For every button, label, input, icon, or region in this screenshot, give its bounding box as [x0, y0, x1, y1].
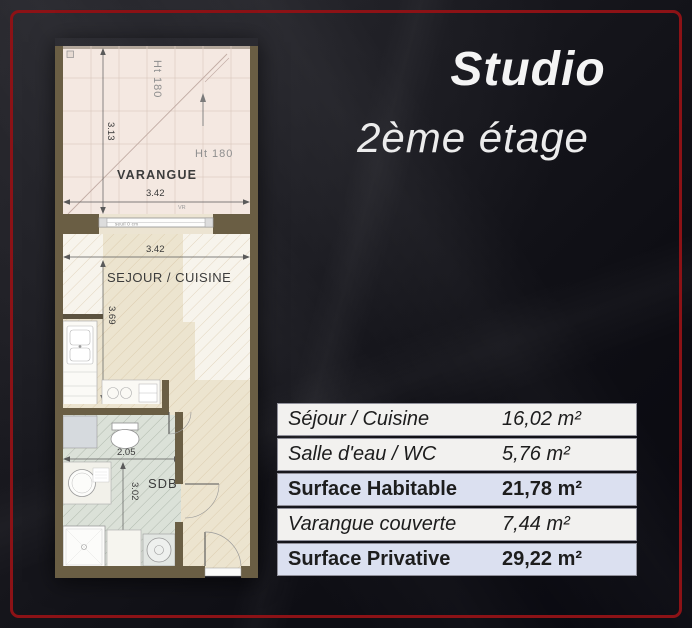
varangue-label: VARANGUE — [117, 168, 197, 182]
row-label: Surface Habitable — [288, 478, 502, 501]
svg-text:3.69: 3.69 — [106, 306, 117, 325]
threshold-label: seuil 0 cm — [115, 222, 138, 227]
vanity-fixture — [107, 530, 141, 568]
sejour-cuisine-room: 3.42 SEJOUR / CUISINE 3.69 — [63, 234, 250, 406]
surface-table: Séjour / Cuisine 16,02 m² Salle d'eau / … — [277, 403, 637, 578]
row-value: 21,78 m² — [502, 478, 628, 501]
shower-fixture — [63, 526, 105, 568]
plan-symbol — [67, 51, 74, 58]
svg-text:3.42: 3.42 — [146, 188, 165, 199]
row-value: 5,76 m² — [502, 443, 628, 466]
presentation-slide: { "theme": { "frame_color": "#8c1216", "… — [0, 0, 692, 628]
row-label: Varangue couverte — [288, 513, 502, 536]
svg-text:3.42: 3.42 — [146, 244, 165, 255]
kitchen-appliances — [102, 380, 160, 406]
svg-text:2.05: 2.05 — [117, 447, 136, 458]
row-label: Salle d'eau / WC — [288, 443, 502, 466]
table-row-varangue: Varangue couverte 7,44 m² — [277, 508, 637, 541]
row-label: Séjour / Cuisine — [288, 408, 502, 431]
row-value: 16,02 m² — [502, 408, 628, 431]
height-label-vertical: Ht 180 — [151, 60, 163, 98]
svg-text:3.02: 3.02 — [129, 482, 140, 501]
row-value: 7,44 m² — [502, 513, 628, 536]
table-row-sejour: Séjour / Cuisine 16,02 m² — [277, 403, 637, 436]
closet — [63, 416, 97, 448]
sdb-label: SDB — [148, 476, 178, 491]
row-label: Surface Privative — [288, 548, 502, 571]
washing-machine-fixture — [143, 534, 175, 566]
table-row-surface-privative: Surface Privative 29,22 m² — [277, 543, 637, 576]
shutter-label: VR — [178, 205, 186, 211]
table-row-surface-habitable: Surface Habitable 21,78 m² — [277, 473, 637, 506]
svg-text:3.13: 3.13 — [105, 122, 116, 141]
varangue-room: 3.13 Ht 180 Ht 180 VARANGUE 3.42 VR — [63, 46, 250, 216]
kitchen-counter — [63, 314, 103, 405]
row-value: 29,22 m² — [502, 548, 628, 571]
toilet-fixture — [111, 423, 139, 449]
threshold-bay-window: seuil 0 cm — [55, 214, 258, 234]
sink-fixture — [63, 462, 111, 504]
table-row-salle-eau: Salle d'eau / WC 5,76 m² — [277, 438, 637, 471]
page-subtitle: 2ème étage — [308, 114, 638, 162]
sejour-label: SEJOUR / CUISINE — [107, 270, 231, 285]
sdb-entry-section: 2.05 3.02 SDB — [63, 404, 250, 568]
page-title: Studio — [368, 42, 688, 97]
height-label-right: Ht 180 — [195, 148, 233, 160]
floor-plan: 3.13 Ht 180 Ht 180 VARANGUE 3.42 VR seui… — [55, 38, 258, 578]
